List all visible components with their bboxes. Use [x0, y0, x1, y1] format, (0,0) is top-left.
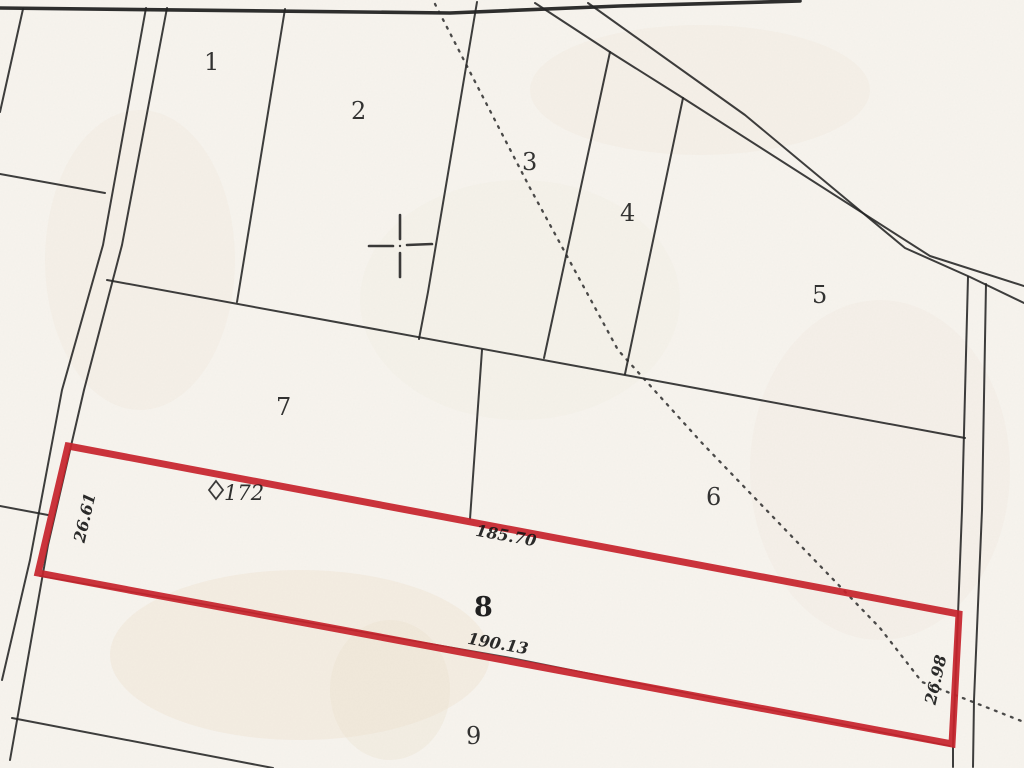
parcel-label-9: 9	[466, 722, 481, 750]
parcel-8-label: 8	[474, 592, 493, 623]
parcel-label-1: 1	[204, 48, 219, 76]
parcel-label-4: 4	[620, 199, 635, 227]
cadastral-map-viewport: 1 2 3 4 5 6 7 9 8 172 185.70 190.13 26.6…	[0, 0, 1024, 768]
parcel-label-6: 6	[706, 483, 721, 511]
parcel-label-2: 2	[351, 97, 366, 125]
parcel-label-7: 7	[276, 393, 291, 421]
marker-label: 172	[224, 481, 264, 505]
parcel-label-3: 3	[522, 148, 537, 176]
parcel-label-5: 5	[812, 281, 827, 309]
cadastral-map: 1 2 3 4 5 6 7 9 8 172 185.70 190.13 26.6…	[0, 0, 1024, 768]
